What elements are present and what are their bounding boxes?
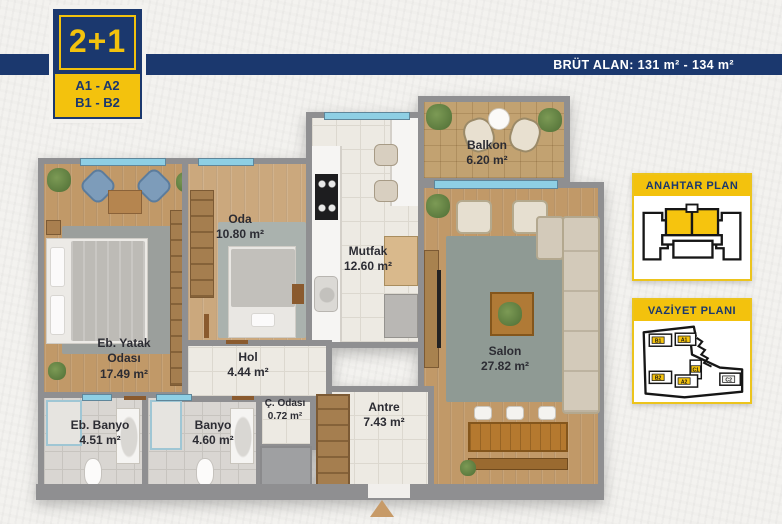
balcony-table (488, 108, 510, 130)
anahtar-plan-title: ANAHTAR PLAN (634, 175, 750, 196)
room-area: 7.43 m² (324, 415, 444, 430)
toilet (84, 458, 102, 486)
unit-type-label: 2+1 (59, 15, 136, 70)
window (156, 394, 192, 401)
room-area: 17.49 m² (86, 367, 162, 382)
plant (426, 104, 452, 130)
unit-codes: A1 - A2 B1 - B2 (55, 74, 140, 117)
room-oda (182, 158, 312, 346)
site-block-label: C1 (692, 367, 699, 373)
sink (314, 276, 338, 312)
room-label-eb-yatak: Eb. Yatak Odası 17.49 m² (86, 336, 162, 382)
exterior-wall (36, 484, 604, 500)
sofa (562, 216, 600, 414)
room-name: Mutfak (308, 244, 428, 259)
nightstand (292, 284, 304, 304)
cooktop (315, 174, 338, 220)
dining-table (468, 422, 568, 452)
toilet (196, 458, 214, 486)
plant (48, 362, 66, 380)
key-plan-diagram (636, 198, 748, 278)
vaziyet-plani-title: VAZİYET PLANI (634, 300, 750, 321)
sofa-chaise (536, 216, 564, 260)
pillow (50, 247, 65, 287)
door (204, 314, 209, 338)
window (198, 158, 254, 166)
site-plan-diagram: B1 A1 C1 B2 A2 C2 (636, 323, 748, 401)
plant (47, 168, 71, 192)
room-label-oda: Oda 10.80 m² (180, 212, 300, 243)
dining-chair (506, 406, 524, 420)
gross-area-text: BRÜT ALAN: 131 m² - 134 m² (553, 58, 782, 72)
room-name: Salon (445, 344, 565, 359)
room-label-mutfak: Mutfak 12.60 m² (308, 244, 428, 275)
room-area: 4.44 m² (188, 365, 308, 380)
plant (498, 302, 522, 326)
site-block-label: A2 (681, 379, 688, 385)
wardrobe (190, 190, 214, 298)
room-area: 27.82 m² (445, 359, 565, 374)
room-area: 4.51 m² (40, 433, 160, 448)
vaziyet-plani-panel[interactable]: VAZİYET PLANI B1 A1 C1 B2 (632, 298, 752, 404)
kitchen-chair (374, 180, 398, 202)
balcony-doors (434, 180, 558, 189)
room-area: 10.80 m² (180, 227, 300, 242)
vaziyet-plani-body: B1 A1 C1 B2 A2 C2 (634, 321, 750, 403)
window (324, 112, 410, 120)
room-name: Hol (188, 350, 308, 365)
window (80, 158, 166, 166)
floor-plan: Balkon 6.20 m² Oda 10.80 m² Mutfak 12.60… (36, 88, 606, 508)
room-name: Oda (180, 212, 300, 227)
dining-bench (468, 458, 568, 470)
dining-chair (474, 406, 492, 420)
kitchen-chair (374, 144, 398, 166)
site-block-label: B1 (655, 339, 662, 345)
pillow (251, 313, 275, 327)
bed (228, 246, 296, 338)
room-label-antre: Antre 7.43 m² (324, 400, 444, 431)
room-label-salon: Salon 27.82 m² (445, 344, 565, 375)
unit-codes-line2: B1 - B2 (55, 95, 140, 112)
plant (460, 460, 476, 476)
room-mutfak (306, 112, 424, 348)
room-label-eb-banyo: Eb. Banyo 4.51 m² (40, 418, 160, 449)
plant (538, 108, 562, 132)
entrance-door (366, 484, 412, 498)
door (124, 396, 146, 400)
duvet (231, 249, 295, 307)
room-name: Eb. Yatak Odası (86, 336, 162, 367)
room-label-c-odasi: Ç. Odası 0.72 m² (235, 398, 335, 424)
entrance-arrow (370, 500, 394, 517)
window (82, 394, 112, 401)
room-name: Ç. Odası (235, 398, 335, 411)
room-area: 6.20 m² (427, 153, 547, 168)
unit-type-box: 2+1 (55, 11, 140, 74)
pillow (50, 295, 65, 335)
site-block-label: C2 (725, 378, 732, 384)
anahtar-plan-body (634, 196, 750, 280)
floor-plan-page: BRÜT ALAN: 131 m² - 134 m² 2+1 A1 - A2 B… (0, 0, 782, 524)
refrigerator (384, 294, 418, 338)
tv (437, 270, 441, 348)
room-name: Balkon (427, 138, 547, 153)
duvet (71, 241, 145, 341)
room-salon (418, 182, 604, 492)
room-name: Eb. Banyo (40, 418, 160, 433)
door (226, 340, 248, 344)
room-area: 12.60 m² (308, 259, 428, 274)
room-area: 4.60 m² (153, 433, 273, 448)
unit-type-badge[interactable]: 2+1 A1 - A2 B1 - B2 (53, 9, 142, 119)
plant (426, 194, 450, 218)
anahtar-plan-panel[interactable]: ANAHTAR PLAN (632, 173, 752, 281)
room-name: Antre (324, 400, 444, 415)
unit-codes-line1: A1 - A2 (55, 78, 140, 95)
room-area: 0.72 m² (235, 411, 335, 424)
armchair (456, 200, 492, 234)
side-table (108, 190, 142, 214)
nightstand (46, 220, 61, 235)
dining-chair (538, 406, 556, 420)
room-label-balkon: Balkon 6.20 m² (427, 138, 547, 169)
site-block-label: A1 (681, 338, 688, 344)
bed (46, 238, 148, 344)
site-block-label: B2 (655, 376, 662, 382)
room-label-hol: Hol 4.44 m² (188, 350, 308, 381)
